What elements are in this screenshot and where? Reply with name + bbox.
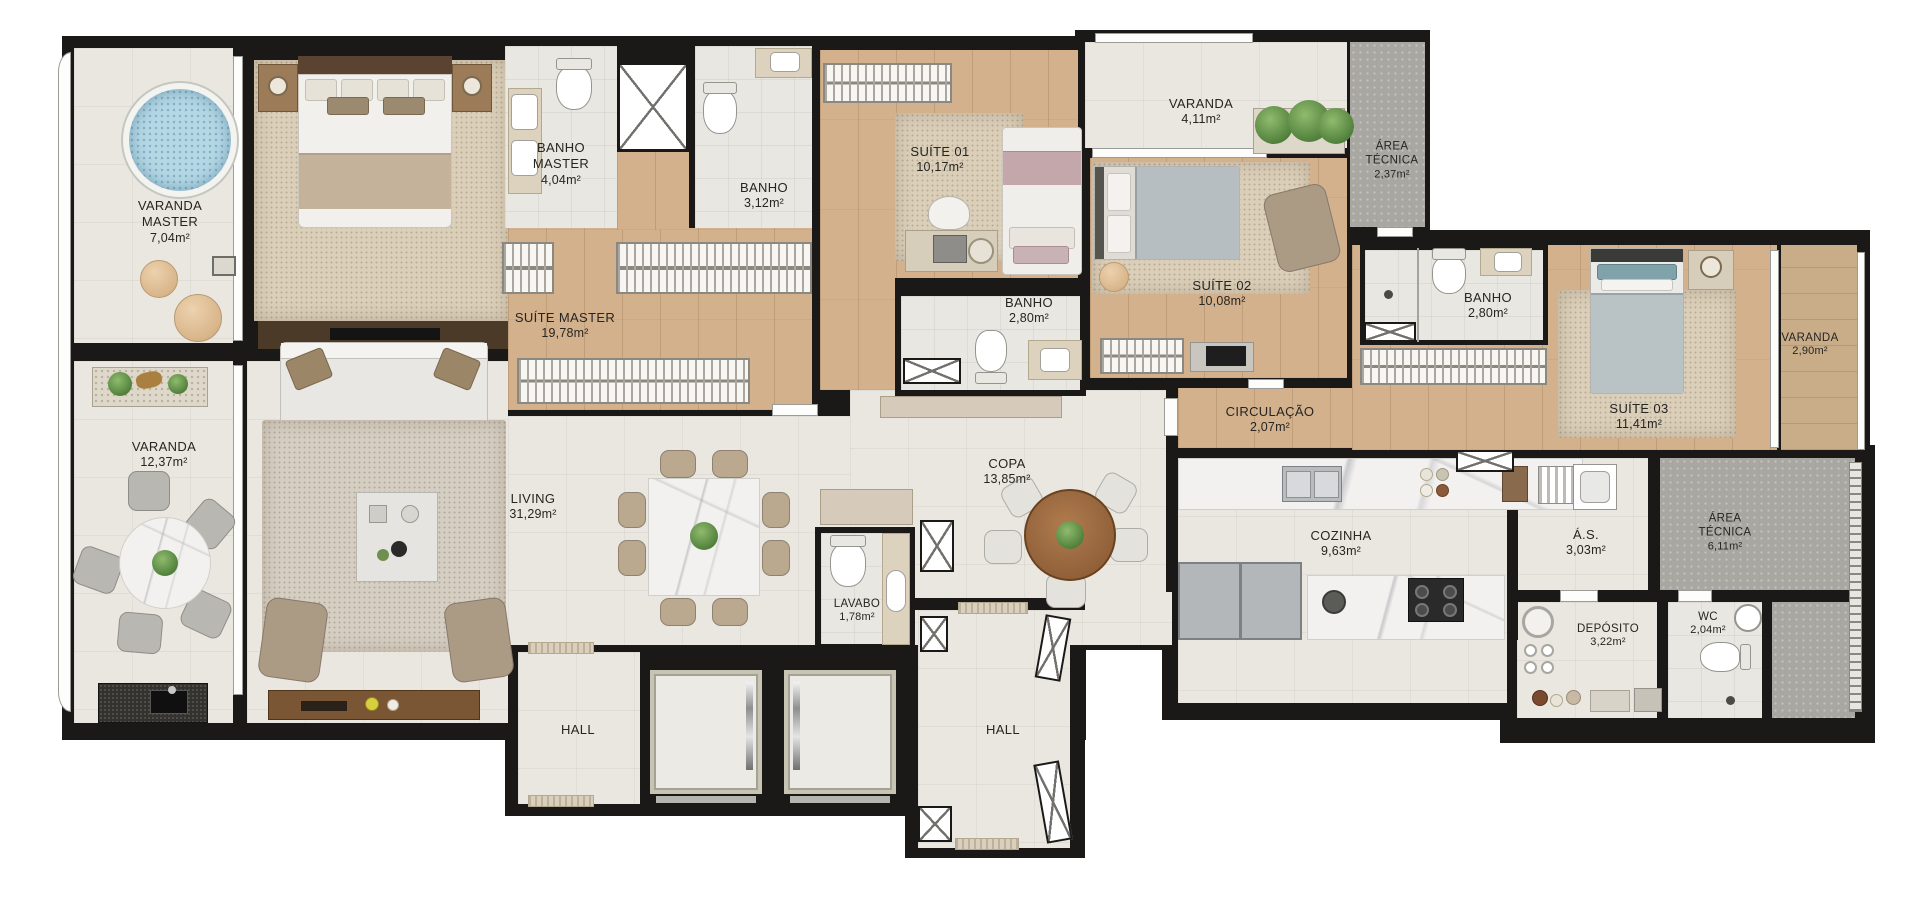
label-varanda-suite-03: VARANDA2,90m² xyxy=(1768,331,1852,359)
sink-bowl xyxy=(1314,471,1339,498)
desk-chair xyxy=(928,196,970,230)
label-circulacao: CIRCULAÇÃO2,07m² xyxy=(1208,404,1332,436)
kitchen-sink xyxy=(1282,466,1342,502)
bed-headboard xyxy=(1591,249,1683,262)
pillow xyxy=(1013,246,1069,264)
pouf xyxy=(174,294,222,342)
fridge-divider xyxy=(1239,564,1242,638)
toilet xyxy=(1432,256,1466,294)
label-area-servico: Á.S.3,03m² xyxy=(1551,527,1621,559)
window-suite-02 xyxy=(1092,148,1267,158)
bed-suite-01 xyxy=(1002,127,1082,275)
duct xyxy=(920,616,948,652)
plate xyxy=(1436,484,1449,497)
tray-item xyxy=(401,505,419,523)
label-living: LIVING31,29m² xyxy=(486,491,580,523)
lamp xyxy=(462,76,482,96)
label-suite-01: SUÍTE 0110,17m² xyxy=(898,144,982,176)
plate xyxy=(1436,468,1449,481)
dryer-knob xyxy=(1541,644,1554,657)
duct xyxy=(1456,450,1514,472)
doormat-hall-servico-north xyxy=(958,602,1028,614)
toilet xyxy=(703,90,737,134)
decor-item xyxy=(387,699,399,711)
tray-item xyxy=(369,505,387,523)
door-deposito xyxy=(1560,590,1598,602)
coffee-set xyxy=(1550,694,1563,707)
blanket xyxy=(1591,293,1683,393)
cooktop xyxy=(1408,578,1464,622)
wardrobe xyxy=(823,63,952,103)
window-facade-west xyxy=(58,52,71,712)
window-varanda-master xyxy=(233,56,243,341)
elevator-door xyxy=(793,682,800,770)
label-varanda-suites: VARANDA4,11m² xyxy=(1154,96,1248,128)
window-varanda-suites-north xyxy=(1095,33,1253,43)
dryer-knob xyxy=(1524,661,1537,674)
label-banho-suite-01: BANHO2,80m² xyxy=(994,295,1064,327)
tub-basin xyxy=(1580,471,1610,503)
wardrobe xyxy=(502,242,554,294)
shower-box xyxy=(1364,322,1416,342)
wardrobe xyxy=(616,242,812,294)
dining-chair xyxy=(660,450,696,478)
pillow xyxy=(1597,264,1677,280)
floor-area-tecnica-2-south xyxy=(1772,602,1855,718)
plate xyxy=(1420,484,1433,497)
toilet xyxy=(556,66,592,110)
tv xyxy=(330,328,440,340)
pillow xyxy=(1107,215,1131,253)
coffee-set xyxy=(1532,690,1548,706)
toilet-tank xyxy=(703,82,737,94)
label-banho-suite-03: BANHO2,80m² xyxy=(1453,290,1523,322)
floor-plan: VARANDA MASTER7,04m² SUÍTE MASTER19,78m²… xyxy=(0,0,1920,899)
plant xyxy=(1318,108,1354,144)
plant xyxy=(1255,106,1293,144)
plate xyxy=(1420,468,1433,481)
radio xyxy=(933,235,967,263)
centerpiece-plant xyxy=(1056,521,1084,549)
box xyxy=(1634,688,1662,712)
dining-chair xyxy=(618,540,646,576)
shower-divider xyxy=(1417,248,1419,342)
label-suite-02: SUÍTE 0210,08m² xyxy=(1180,278,1264,310)
label-varanda-master: VARANDA MASTER7,04m² xyxy=(128,198,212,247)
window-varanda-suite-03 xyxy=(1857,252,1865,450)
label-area-tecnica-1: ÁREA TÉCNICA2,37m² xyxy=(1360,140,1424,183)
sofa xyxy=(280,342,488,426)
lamp xyxy=(1700,256,1722,278)
coffee-table xyxy=(356,492,438,582)
label-banho-master: BANHO MASTER4,04m² xyxy=(515,140,607,189)
burner xyxy=(1443,585,1457,599)
blanket xyxy=(299,153,451,209)
toilet-tank xyxy=(975,372,1007,384)
patio-chair xyxy=(116,611,163,655)
label-copa: COPA13,85m² xyxy=(960,456,1054,488)
label-varanda-living: VARANDA12,37m² xyxy=(117,439,211,471)
buffet xyxy=(820,489,913,525)
laundry-tub xyxy=(1573,464,1617,510)
patio-chair xyxy=(128,471,170,511)
bed-suite-03 xyxy=(1590,248,1684,394)
decor-item xyxy=(365,697,379,711)
pouf xyxy=(1099,262,1129,292)
bed-master xyxy=(298,74,452,228)
burner xyxy=(1415,585,1429,599)
doormat-hall-servico-south xyxy=(955,838,1019,850)
dining-chair xyxy=(712,450,748,478)
blanket xyxy=(1003,151,1081,185)
floor-vestibule xyxy=(617,152,689,230)
label-lavabo: LAVABO1,78m² xyxy=(817,597,897,625)
doormat-hall-social-south xyxy=(528,795,594,807)
sideboard xyxy=(268,690,480,720)
washer xyxy=(1522,606,1554,638)
door-suite-master xyxy=(772,404,818,416)
elevator-sill xyxy=(790,796,890,803)
door-copa-circulacao xyxy=(1164,398,1178,436)
dining-chair xyxy=(712,598,748,626)
pillow xyxy=(1107,173,1131,211)
toilet-tank xyxy=(830,535,866,547)
decor-item xyxy=(301,701,347,711)
burner xyxy=(1443,603,1457,617)
photo-frame xyxy=(212,256,236,276)
sink xyxy=(511,94,538,130)
window-varanda-living xyxy=(233,365,243,695)
doormat-hall-social-north xyxy=(528,642,594,654)
label-deposito: DEPÓSITO3,22m² xyxy=(1561,622,1655,650)
pot xyxy=(1322,590,1346,614)
sink xyxy=(770,52,800,72)
label-banho-social: BANHO3,12m² xyxy=(729,180,799,212)
toilet xyxy=(1700,642,1740,672)
wall-cozinha-as xyxy=(1507,510,1518,640)
bbq-sink xyxy=(150,690,188,714)
dryer-knob xyxy=(1541,661,1554,674)
pillow xyxy=(1601,279,1673,291)
shower-head xyxy=(1726,696,1735,705)
label-hall-servico: HALL xyxy=(973,722,1033,738)
sink xyxy=(1494,252,1522,272)
sink-bowl xyxy=(1286,471,1311,498)
elevator xyxy=(784,670,896,794)
bed-master-headboard xyxy=(298,56,452,74)
toilet-tank xyxy=(1740,644,1751,670)
duct xyxy=(920,520,954,572)
bed-headboard xyxy=(1095,167,1104,259)
pillow xyxy=(327,97,369,115)
elevator xyxy=(650,670,762,794)
wardrobe xyxy=(1100,338,1184,374)
tray xyxy=(1590,690,1630,712)
armchair xyxy=(443,596,516,684)
door-wc xyxy=(1678,590,1712,602)
label-area-tecnica-2: ÁREA TÉCNICA6,11m² xyxy=(1692,512,1758,555)
shower-box xyxy=(903,358,961,384)
toilet xyxy=(830,543,866,587)
label-cozinha: COZINHA9,63m² xyxy=(1294,528,1388,560)
blanket xyxy=(1135,167,1239,259)
pouf xyxy=(140,260,178,298)
bed-suite-02 xyxy=(1094,166,1240,260)
mirror-tray xyxy=(968,238,994,264)
shower-head xyxy=(1384,290,1393,299)
armchair xyxy=(257,596,330,684)
faucet xyxy=(168,686,176,694)
centerpiece-plant xyxy=(690,522,718,550)
plant xyxy=(108,372,132,396)
buffet xyxy=(880,396,1062,418)
label-suite-03: SUÍTE 0311,41m² xyxy=(1597,401,1681,433)
jacuzzi xyxy=(123,83,237,197)
wall-dressing-corridor xyxy=(812,46,820,404)
fridge xyxy=(1178,562,1302,640)
floor-area-tecnica-1 xyxy=(1350,42,1425,227)
louver-area-tecnica xyxy=(1849,462,1862,712)
dining-chair xyxy=(762,540,790,576)
dining-chair xyxy=(762,492,790,528)
tv xyxy=(1206,346,1246,366)
tray-item xyxy=(391,541,407,557)
tray-item xyxy=(377,549,389,561)
dish-rack xyxy=(1538,466,1574,504)
sink xyxy=(1040,348,1070,372)
pillow xyxy=(383,97,425,115)
centerpiece-plant xyxy=(152,550,178,576)
toilet-tank xyxy=(556,58,592,70)
dryer-knob xyxy=(1524,644,1537,657)
coffee-set xyxy=(1566,690,1581,705)
elevator-shaft xyxy=(617,62,689,152)
label-suite-master: SUÍTE MASTER19,78m² xyxy=(500,310,630,342)
label-hall-social: HALL xyxy=(548,722,608,738)
label-wc: WC2,04m² xyxy=(1673,610,1743,638)
wardrobe xyxy=(1360,348,1547,385)
door-circulacao-suite-02 xyxy=(1248,379,1284,389)
copa-chair xyxy=(984,530,1022,564)
toilet-tank xyxy=(1432,248,1466,260)
duct xyxy=(918,806,952,842)
wardrobe xyxy=(517,358,750,404)
toilet xyxy=(975,330,1007,372)
door-area-tecnica-1 xyxy=(1377,227,1413,237)
burner xyxy=(1415,603,1429,617)
elevator-sill xyxy=(656,796,756,803)
dining-chair xyxy=(618,492,646,528)
plant xyxy=(168,374,188,394)
dining-chair xyxy=(660,598,696,626)
elevator-door xyxy=(746,682,753,770)
wall-suite01-south xyxy=(895,278,1086,290)
lamp xyxy=(268,76,288,96)
